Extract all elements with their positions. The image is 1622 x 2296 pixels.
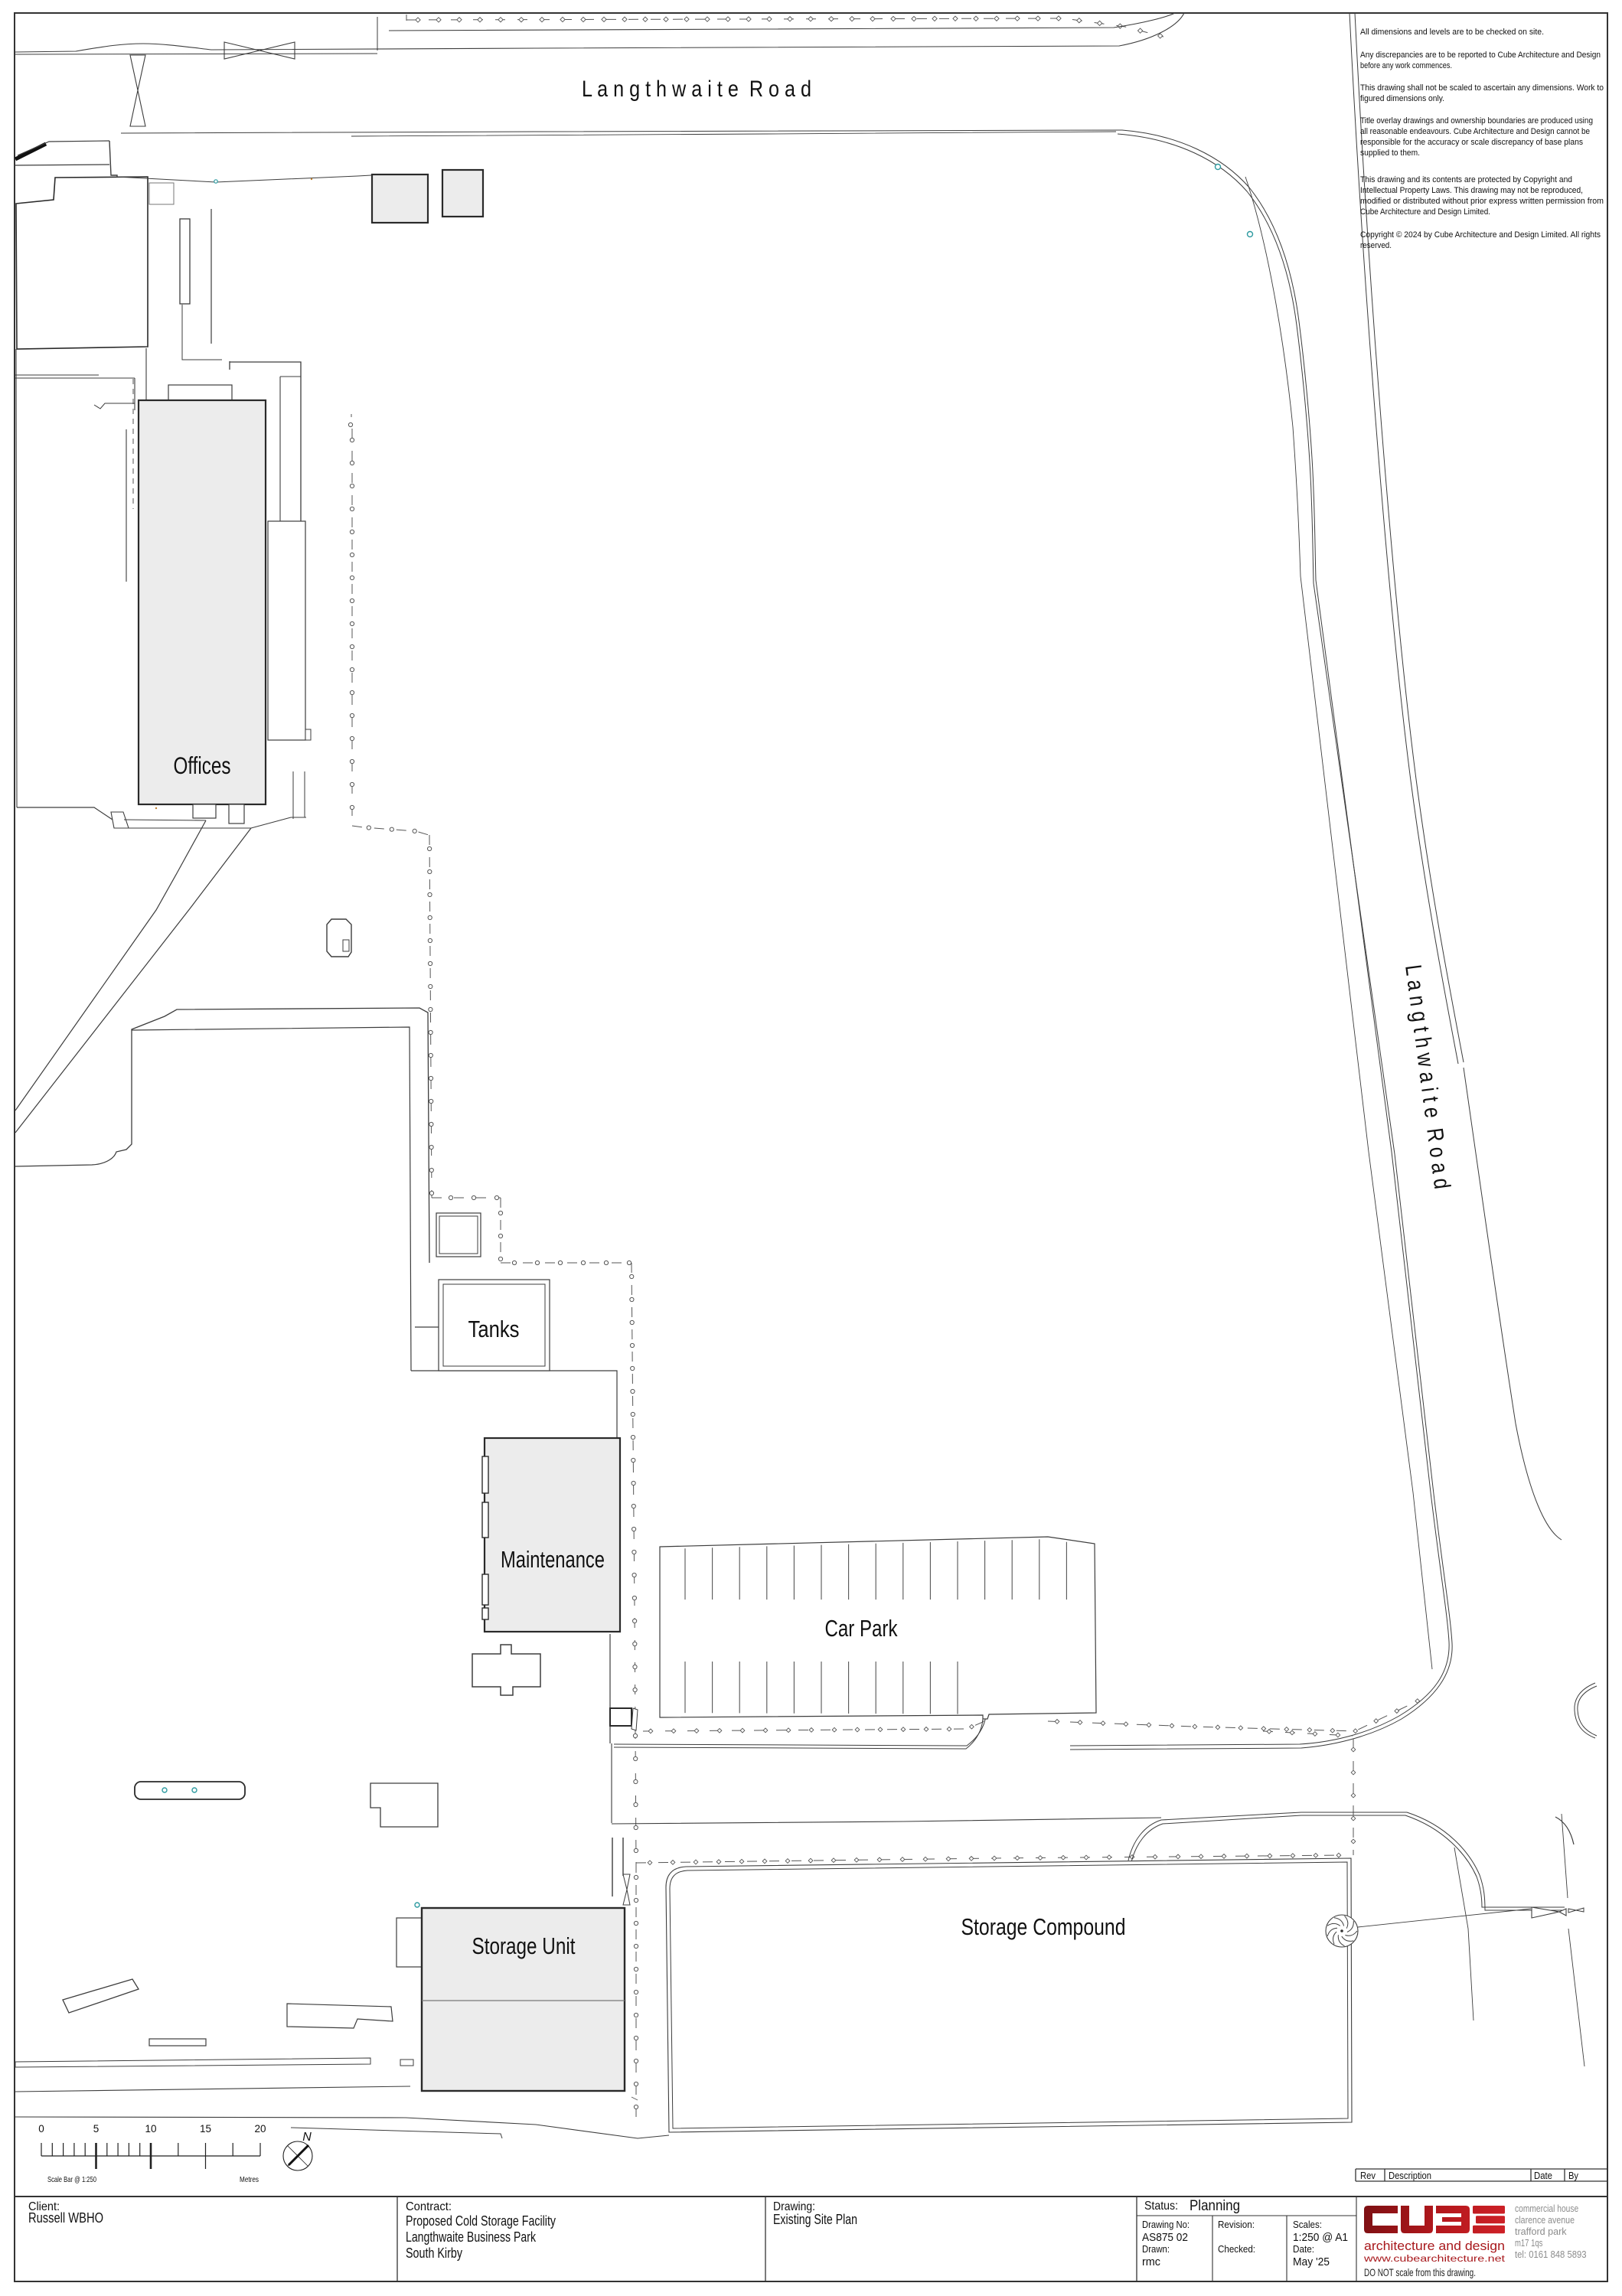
svg-text:This drawing shall not be scal: This drawing shall not be scaled to asce… — [1360, 83, 1604, 93]
svg-text:Description: Description — [1389, 2170, 1431, 2181]
svg-text:Scales:: Scales: — [1293, 2219, 1322, 2230]
svg-text:Date:: Date: — [1293, 2244, 1314, 2255]
svg-text:10: 10 — [145, 2123, 156, 2135]
svg-text:Copyright © 2024 by Cube Archi: Copyright © 2024 by Cube Architecture an… — [1360, 230, 1601, 240]
svg-text:Tanks: Tanks — [468, 1316, 520, 1342]
svg-text:Intellectual Property Laws. Th: Intellectual Property Laws. This drawing… — [1360, 186, 1583, 195]
svg-text:Existing Site Plan: Existing Site Plan — [773, 2212, 857, 2227]
svg-text:Drawn:: Drawn: — [1142, 2244, 1170, 2255]
svg-text:Scale Bar @ 1:250: Scale Bar @ 1:250 — [47, 2175, 96, 2184]
svg-text:Any discrepancies are to be re: Any discrepancies are to be reported to … — [1360, 51, 1601, 60]
svg-text:By: By — [1568, 2170, 1579, 2181]
svg-text:modified or distributed withou: modified or distributed without prior ex… — [1360, 197, 1604, 206]
svg-text:www.cubearchitecture.net: www.cubearchitecture.net — [1363, 2255, 1506, 2264]
svg-text:0: 0 — [38, 2123, 44, 2135]
svg-text:rmc: rmc — [1142, 2255, 1160, 2268]
svg-text:Metres: Metres — [240, 2175, 259, 2184]
svg-text:5: 5 — [93, 2123, 100, 2135]
svg-text:Car Park: Car Park — [825, 1615, 898, 1642]
svg-text:reserved.: reserved. — [1360, 241, 1392, 250]
svg-text:May '25: May '25 — [1293, 2255, 1330, 2268]
svg-text:20: 20 — [254, 2123, 266, 2135]
svg-text:responsible for the accuracy o: responsible for the accuracy or scale di… — [1360, 138, 1583, 147]
svg-text:Revision:: Revision: — [1218, 2219, 1255, 2230]
svg-text:DO NOT scale from this drawing: DO NOT scale from this drawing. — [1364, 2266, 1476, 2278]
svg-text:South Kirby: South Kirby — [406, 2245, 462, 2261]
svg-text:Proposed Cold Storage Facility: Proposed Cold Storage Facility — [406, 2213, 556, 2229]
svg-text:clarence avenue: clarence avenue — [1515, 2215, 1575, 2226]
svg-text:Date: Date — [1534, 2170, 1552, 2181]
svg-text:all reasonable endeavours. Cub: all reasonable endeavours. Cube Architec… — [1360, 127, 1590, 136]
svg-text:1:250 @ A1: 1:250 @ A1 — [1293, 2231, 1348, 2244]
svg-text:Contract:: Contract: — [406, 2200, 452, 2213]
svg-text:N: N — [302, 2131, 312, 2144]
svg-text:Checked:: Checked: — [1218, 2244, 1255, 2255]
svg-text:All dimensions and levels are: All dimensions and levels are to be chec… — [1360, 28, 1544, 37]
svg-text:Rev: Rev — [1360, 2170, 1376, 2181]
svg-text:Status:: Status: — [1144, 2200, 1178, 2213]
svg-text:15: 15 — [200, 2123, 211, 2135]
svg-text:Storage Compound: Storage Compound — [961, 1913, 1126, 1940]
svg-text:trafford park: trafford park — [1515, 2226, 1567, 2237]
svg-text:Title overlay drawings and own: Title overlay drawings and ownership bou… — [1360, 116, 1593, 126]
svg-text:tel: 0161 848 5893: tel: 0161 848 5893 — [1515, 2249, 1587, 2260]
svg-text:L a n g t h w a i t e R o a d: L a n g t h w a i t e R o a d — [582, 77, 811, 102]
svg-text:Planning: Planning — [1190, 2198, 1240, 2214]
svg-text:commercial house: commercial house — [1515, 2203, 1578, 2214]
svg-text:Offices: Offices — [174, 752, 231, 779]
svg-text:Cube Architecture and Design L: Cube Architecture and Design Limited. — [1360, 207, 1490, 217]
svg-text:This drawing and its contents: This drawing and its contents are protec… — [1360, 175, 1572, 184]
svg-text:m17 1qs: m17 1qs — [1515, 2238, 1542, 2249]
svg-text:before any work commences.: before any work commences. — [1360, 61, 1452, 70]
svg-text:figured dimensions only.: figured dimensions only. — [1360, 94, 1444, 103]
svg-text:AS875 02: AS875 02 — [1142, 2231, 1188, 2244]
svg-text:Langthwaite Business Park: Langthwaite Business Park — [406, 2229, 537, 2245]
svg-text:Storage Unit: Storage Unit — [472, 1932, 576, 1959]
svg-text:architecture and design: architecture and design — [1364, 2239, 1505, 2253]
svg-text:supplied to them.: supplied to them. — [1360, 148, 1420, 158]
svg-text:Russell WBHO: Russell WBHO — [28, 2210, 103, 2226]
svg-text:Maintenance: Maintenance — [501, 1546, 605, 1573]
svg-text:Drawing No:: Drawing No: — [1142, 2219, 1190, 2230]
